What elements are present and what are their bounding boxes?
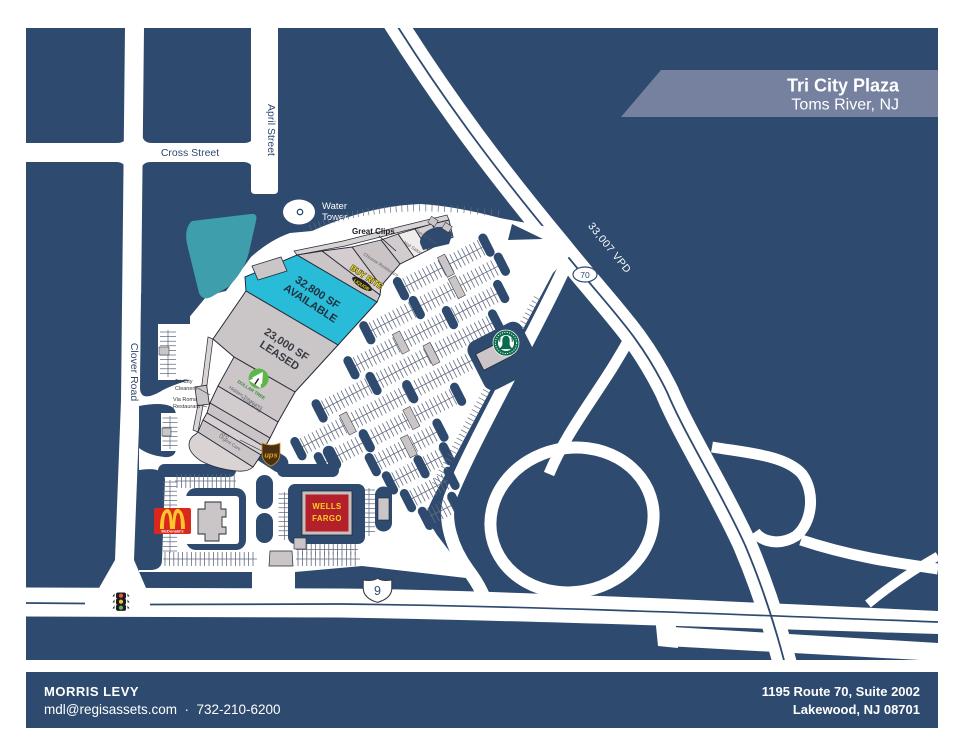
svg-text:ups: ups bbox=[264, 451, 277, 460]
svg-text:1195 Route 70, Suite 2002: 1195 Route 70, Suite 2002 bbox=[762, 684, 920, 699]
svg-text:WELLS: WELLS bbox=[312, 502, 341, 511]
svg-text:Tri City Plaza: Tri City Plaza bbox=[787, 76, 900, 96]
svg-text:MORRIS LEVY: MORRIS LEVY bbox=[44, 684, 139, 699]
svg-text:9: 9 bbox=[374, 584, 381, 598]
svg-text:Great Clips: Great Clips bbox=[352, 227, 395, 236]
svg-text:Lakewood, NJ 08701: Lakewood, NJ 08701 bbox=[793, 702, 920, 717]
svg-text:Toms River, NJ: Toms River, NJ bbox=[791, 97, 899, 114]
svg-text:Cleaners: Cleaners bbox=[175, 386, 197, 392]
svg-text:April Street: April Street bbox=[265, 104, 277, 156]
svg-text:mdl@regisassets.com · 732-21: mdl@regisassets.com · 732-210-6200 bbox=[44, 702, 281, 717]
svg-text:Cross Street: Cross Street bbox=[161, 147, 219, 159]
svg-text:Water: Water bbox=[322, 201, 347, 212]
svg-text:Clover Road: Clover Road bbox=[128, 343, 140, 402]
svg-text:FARGO: FARGO bbox=[312, 514, 342, 523]
svg-text:70: 70 bbox=[580, 270, 590, 280]
svg-text:Tri-City: Tri-City bbox=[175, 379, 193, 385]
svg-text:McDonald's: McDonald's bbox=[161, 529, 184, 534]
svg-text:Restaurant: Restaurant bbox=[173, 404, 200, 410]
svg-text:Via Roma: Via Roma bbox=[173, 397, 198, 403]
svg-text:Tower: Tower bbox=[322, 212, 347, 223]
